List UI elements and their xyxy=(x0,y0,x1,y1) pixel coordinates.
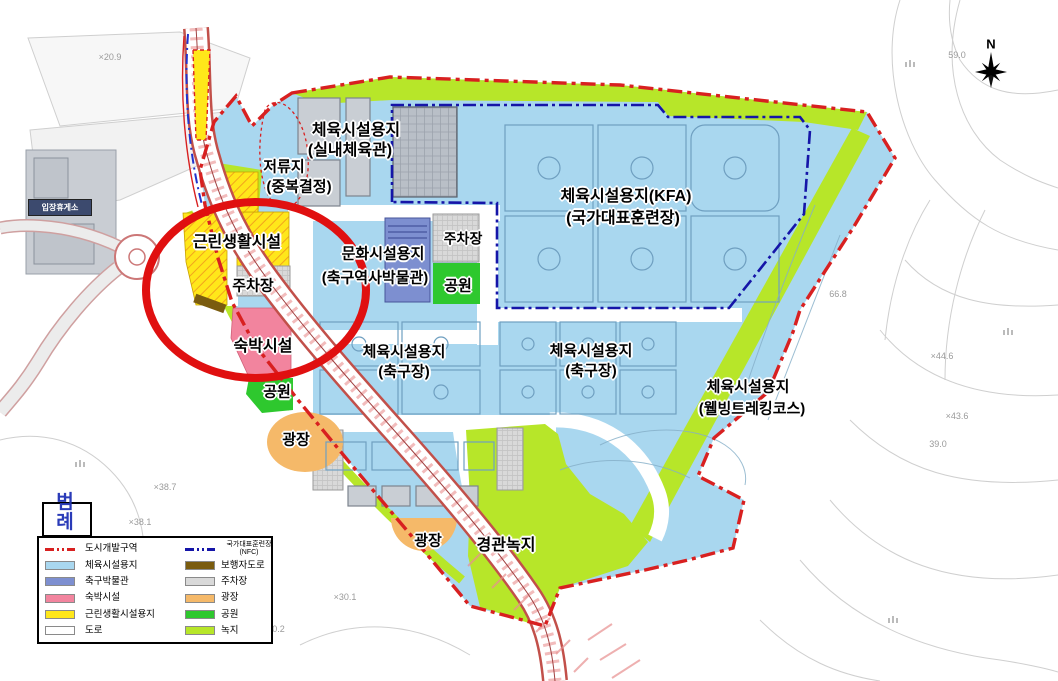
label-soccer-right-line2: (축구장) xyxy=(565,363,616,382)
legend-swatch-road xyxy=(45,626,75,635)
elevation-label: 39.0 xyxy=(929,439,947,449)
label-wellbeing-line1: 체육시설용지 xyxy=(707,379,790,398)
parking-lot-bottom2 xyxy=(497,428,523,490)
elevation-label: ×43.6 xyxy=(946,411,969,421)
label-kfa-line2: (국가대표훈련장) xyxy=(566,209,680,229)
legend-swatch-plaza xyxy=(185,594,215,603)
legend-swatch-nfc-line xyxy=(185,548,215,551)
legend-label-plaza: 광장 xyxy=(221,593,277,603)
legend-label-sports-site: 체육시설용지 xyxy=(85,561,185,571)
rest-area-sign: 입장휴게소 xyxy=(28,199,92,216)
label-kfa-line1: 체육시설용지(KFA) xyxy=(561,187,692,207)
legend-label-road: 도로 xyxy=(85,626,185,636)
label-park-right: 공원 xyxy=(444,278,472,297)
land-use-plan-map: 체육시설용지 (실내체육관) 저류지 (중복결정) 체육시설용지(KFA) (국… xyxy=(0,0,1058,681)
label-indoor-gym-line1: 체육시설용지 xyxy=(312,121,400,141)
label-parking-top: 주차장 xyxy=(444,230,483,248)
label-retention-line2: (중복결정) xyxy=(266,179,331,198)
elevation-label: ×38.7 xyxy=(154,482,177,492)
legend-label-dev-zone: 도시개발구역 xyxy=(85,544,185,554)
label-plaza-bottom: 광장 xyxy=(414,533,442,552)
label-retention-line1: 저류지 xyxy=(263,159,304,178)
legend-swatch-lodging xyxy=(45,594,75,603)
legend-label-park: 공원 xyxy=(221,610,277,620)
legend-swatch-museum xyxy=(45,577,75,586)
elevation-label: 66.8 xyxy=(829,289,847,299)
legend-title: 범례 xyxy=(55,493,75,533)
compass-icon xyxy=(973,52,1010,90)
legend-label-parking: 주차장 xyxy=(221,577,277,587)
legend-swatch-green-space xyxy=(185,626,215,635)
elevation-label: ×38.1 xyxy=(129,517,152,527)
legend-swatch-parking xyxy=(185,577,215,586)
legend-label-nfc-line2: (NFC) xyxy=(239,549,258,556)
label-soccer-left-line1: 체육시설용지 xyxy=(363,344,446,363)
label-plaza-left: 광장 xyxy=(282,432,310,451)
label-wellbeing-line2: (웰빙트레킹코스) xyxy=(699,401,806,420)
elevation-label: ×30.1 xyxy=(334,592,357,602)
label-parking-left: 주차장 xyxy=(232,278,273,297)
label-culture-line1: 문화시설용지 xyxy=(342,246,425,265)
elevation-label: ×44.6 xyxy=(931,351,954,361)
label-park-left: 공원 xyxy=(263,384,291,403)
label-neighborhood: 근린생활시설 xyxy=(193,233,281,253)
legend-label-lodging: 숙박시설 xyxy=(85,593,185,603)
label-indoor-gym-line2: (실내체육관) xyxy=(308,141,392,161)
legend-swatch-park xyxy=(185,610,215,619)
legend-label-nfc: 국가대표훈련장(NFC) xyxy=(221,541,277,557)
legend-label-museum: 축구박물관 xyxy=(85,577,185,587)
legend-swatch-dev-zone-line xyxy=(45,548,75,551)
label-soccer-left-line2: (축구장) xyxy=(378,364,429,383)
legend-swatch-pedestrian-road xyxy=(185,561,215,570)
legend-swatch-sports-site xyxy=(45,561,75,570)
legend-label-neighborhood: 근린생활시설용지 xyxy=(85,610,185,620)
legend-label-green-space: 녹지 xyxy=(221,626,277,636)
legend-label-nfc-line1: 국가대표훈련장 xyxy=(226,541,271,548)
label-culture-line2: (축구역사박물관) xyxy=(322,270,429,289)
legend-swatch-neighborhood xyxy=(45,610,75,619)
elevation-label: 59.0 xyxy=(948,50,966,60)
compass-north-label: N xyxy=(986,37,995,52)
legend-label-pedestrian-road: 보행자도로 xyxy=(221,561,277,571)
legend: 도시개발구역 국가대표훈련장(NFC) 체육시설용지 보행자도로 축구박물관 주… xyxy=(37,536,273,644)
label-soccer-right-line1: 체육시설용지 xyxy=(550,343,633,362)
label-lodging: 숙박시설 xyxy=(234,337,293,357)
label-landscape-green: 경관녹지 xyxy=(477,536,536,556)
elevation-label: ×20.9 xyxy=(99,52,122,62)
